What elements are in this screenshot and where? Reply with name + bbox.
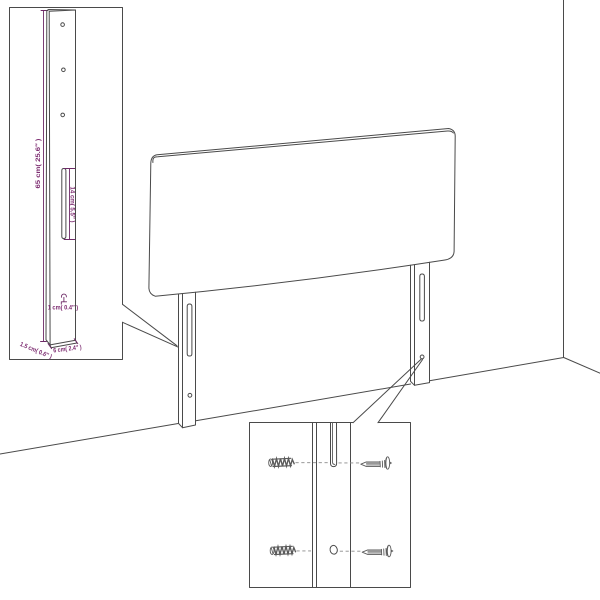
svg-text:65 cm( 25.6″ ): 65 cm( 25.6″ ): [35, 139, 42, 189]
svg-text:14 cm( 5.5″ ): 14 cm( 5.5″ ): [69, 187, 76, 223]
svg-text:6 cm( 2.4″ ): 6 cm( 2.4″ ): [53, 344, 82, 354]
svg-text:1 cm( 0.4″ ): 1 cm( 0.4″ ): [48, 304, 78, 311]
svg-text:1.5 cm( 0.6″ ): 1.5 cm( 0.6″ ): [19, 341, 53, 361]
